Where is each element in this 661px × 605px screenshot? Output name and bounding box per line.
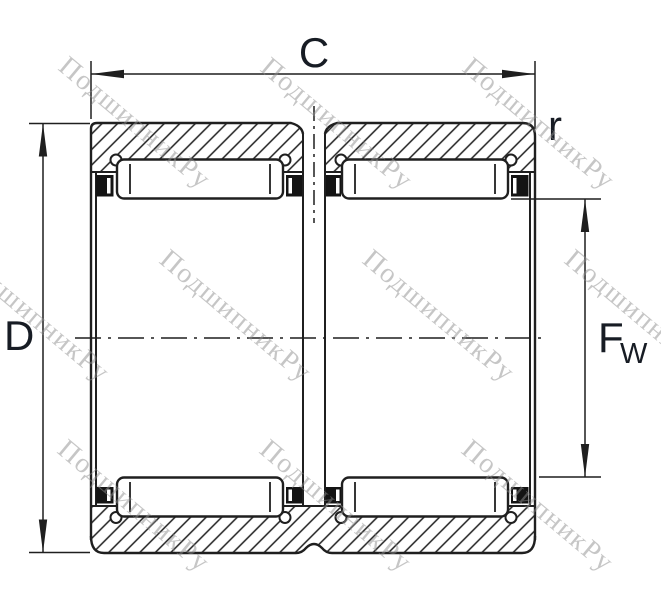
cage-slot [289,490,293,502]
cage-slot [289,178,293,194]
dim-label-f-subscript: W [620,338,648,370]
cage-slot [336,178,340,194]
cage-top-center-left [286,175,302,197]
watermark-text: ПодшипникРу [154,244,319,389]
watermark-text: ПодшипникРу [357,244,522,389]
arrowhead-up [39,124,47,157]
watermark-text: ПодшипникРу [0,244,116,389]
dimension-bore-fw: F W [511,199,648,477]
arrowhead-up [581,199,589,232]
arrowhead-down [581,444,589,477]
roller-bottom-right [342,478,508,517]
cage-slot [107,178,111,194]
bearing-technical-drawing: C D F W r ПодшипникРу ПодшипникРу Подшип… [0,0,661,605]
arrowhead-down [39,520,47,553]
dim-label-c: C [299,29,329,76]
cage-top-outer-left [96,175,114,197]
cage-slot [513,178,517,194]
drawing-canvas: C D F W r ПодшипникРу ПодшипникРу Подшип… [0,0,661,605]
